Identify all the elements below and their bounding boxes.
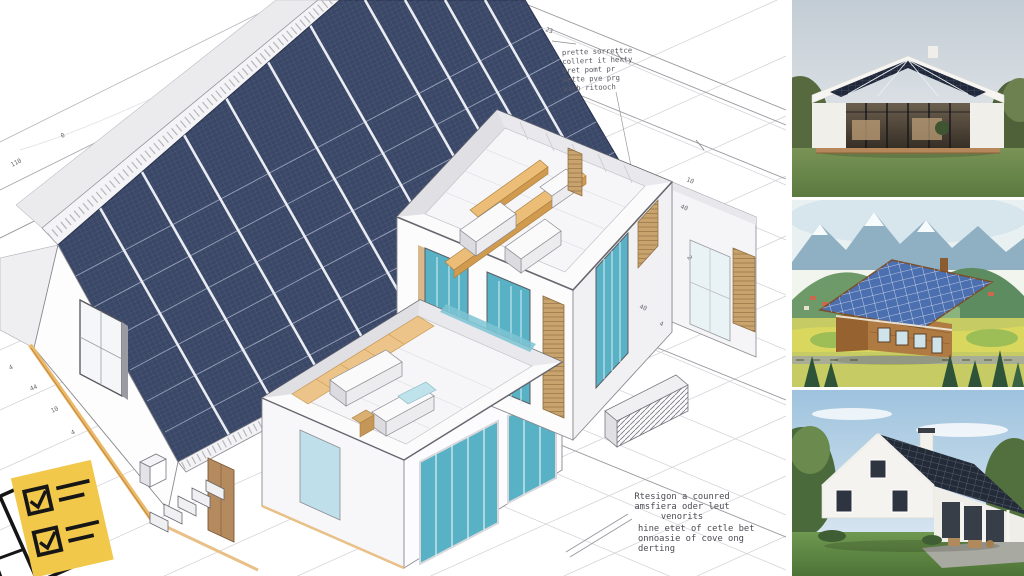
svg-text:Rtesigon a counred: Rtesigon a counred bbox=[634, 492, 729, 502]
gallery-illustration-watercolor-chalet bbox=[792, 200, 1024, 387]
svg-text:derting: derting bbox=[638, 544, 675, 554]
svg-text:onnoasie of cove ong: onnoasie of cove ong bbox=[638, 534, 744, 544]
wood-slat-panel bbox=[733, 248, 755, 332]
svg-text:amsfiera oder leut: amsfiera oder leut bbox=[634, 502, 729, 512]
svg-text:venorits: venorits bbox=[661, 512, 703, 522]
gallery-photo-modern-house bbox=[792, 0, 1024, 197]
wood-column bbox=[568, 148, 582, 196]
patio-furniture bbox=[948, 538, 960, 546]
svg-text:with ritooch: with ritooch bbox=[563, 82, 616, 93]
screenshot-root: prette sorrettce collert it herty bret p… bbox=[0, 0, 1024, 576]
architectural-diagram-pane: prette sorrettce collert it herty bret p… bbox=[0, 0, 792, 576]
gable-window bbox=[870, 460, 886, 478]
patio-door bbox=[942, 502, 960, 538]
deck bbox=[816, 148, 1000, 153]
svg-text:hine etet of cetle bet: hine etet of cetle bet bbox=[638, 524, 755, 534]
architectural-diagram: prette sorrettce collert it herty bret p… bbox=[0, 0, 786, 576]
reference-image-gallery bbox=[792, 0, 1024, 576]
gallery-photo-farmhouse bbox=[792, 390, 1024, 576]
